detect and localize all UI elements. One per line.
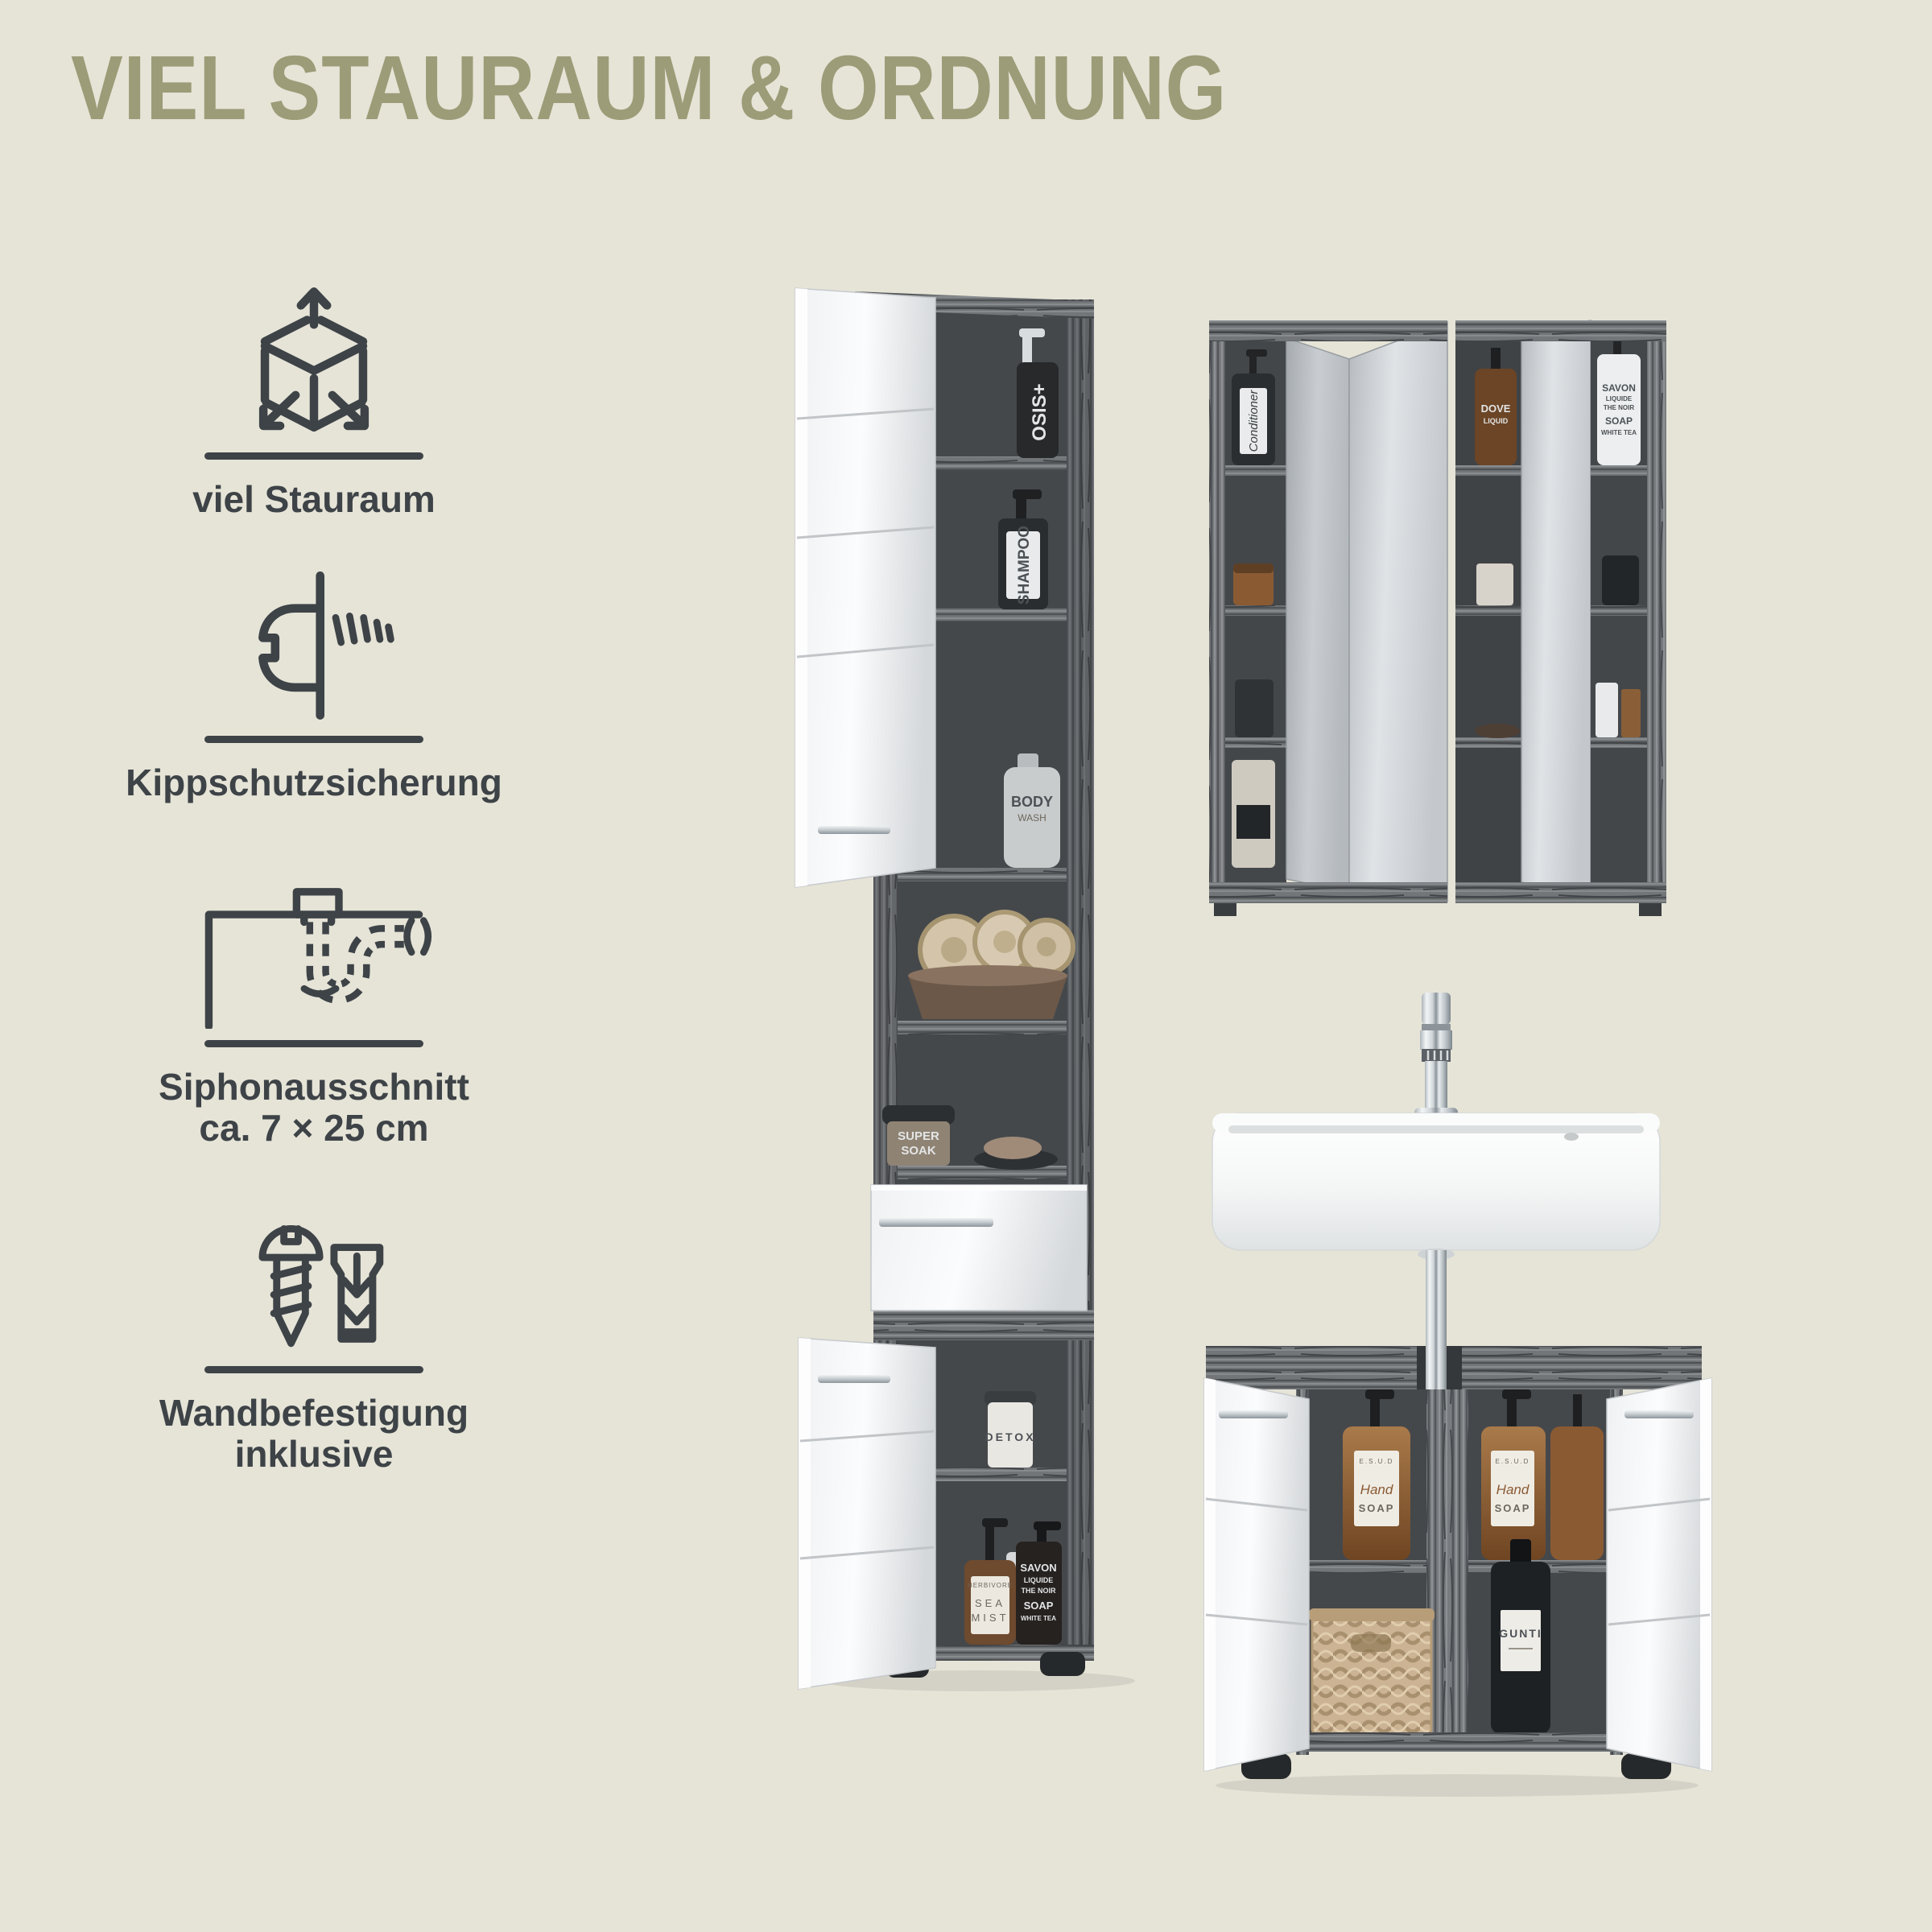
shelf bbox=[1455, 465, 1521, 476]
counter-top-left bbox=[1206, 1346, 1417, 1389]
jar-label-detox: DETOX bbox=[985, 1430, 1036, 1443]
washbasin bbox=[1212, 1113, 1660, 1250]
bottle-label-mist: MIST bbox=[971, 1612, 1009, 1624]
bottle-label-conditioner: Conditioner bbox=[1247, 390, 1261, 452]
mid-shelf-left bbox=[1309, 1560, 1426, 1573]
bottle-label-liquide: LIQUIDE bbox=[1606, 395, 1633, 402]
wicker-basket bbox=[1309, 1608, 1435, 1734]
shelf bbox=[1591, 605, 1647, 616]
bottle-label-whitetea: WHITE TEA bbox=[1601, 429, 1637, 436]
pump-nozzle bbox=[1034, 1521, 1061, 1530]
bottle-label-herbivore: HERBIVORE bbox=[968, 1582, 1013, 1589]
mirror-cabinet-left-unit: Conditioner bbox=[1209, 320, 1447, 916]
bottle-label-body: BODY bbox=[1011, 794, 1053, 810]
vanity-bottom-board bbox=[1296, 1732, 1623, 1752]
dropper-top bbox=[1491, 348, 1501, 370]
shelf bbox=[1225, 605, 1286, 616]
foot bbox=[1040, 1652, 1085, 1676]
shelf bbox=[1455, 605, 1521, 616]
bottle-label-noir: THE NOIR bbox=[1021, 1587, 1056, 1595]
gunti-bottle: GUNTI bbox=[1491, 1539, 1550, 1734]
bottle-label-osis: OSIS+ bbox=[1029, 383, 1051, 440]
bottle-label-gunti: GUNTI bbox=[1499, 1627, 1542, 1640]
pump-nozzle bbox=[982, 1518, 1008, 1527]
white-tube bbox=[1596, 683, 1618, 737]
towel-core bbox=[941, 937, 967, 963]
door-handle bbox=[818, 1375, 890, 1383]
bottle-label-sea: SEA bbox=[975, 1597, 1005, 1609]
towel-core bbox=[1037, 937, 1056, 956]
bottle-label bbox=[1501, 1610, 1541, 1671]
shelf bbox=[1455, 737, 1521, 748]
sink-vanity: E.S.U.D Hand SOAP E.S.U.D Hand SOAP bbox=[1204, 993, 1711, 1797]
pump-stem bbox=[1370, 1394, 1380, 1430]
detox-jar: DETOX bbox=[985, 1391, 1036, 1468]
shelf bbox=[898, 1166, 1067, 1179]
top-board bbox=[1455, 320, 1666, 341]
mirror-door-right-half bbox=[1349, 322, 1447, 902]
pump-nozzle bbox=[1502, 1389, 1531, 1399]
door-edge bbox=[1204, 1378, 1216, 1771]
faucet-column bbox=[1425, 1061, 1447, 1114]
bottle-label-soap: SOAP bbox=[1024, 1600, 1054, 1612]
bottle-label-dove: DOVE bbox=[1481, 402, 1511, 415]
bottle-label-esud: E.S.U.D bbox=[1496, 1458, 1530, 1465]
right-frame bbox=[1647, 340, 1666, 903]
tall-cabinet: OSIS+ SHAMPOO BODY WASH bbox=[795, 288, 1135, 1691]
drawer-front bbox=[871, 1185, 1087, 1311]
band-below-drawer bbox=[873, 1310, 1094, 1340]
door-panel bbox=[1204, 1378, 1309, 1771]
bottle-label-shampoo: SHAMPOO bbox=[1016, 526, 1033, 605]
small-dish bbox=[1475, 724, 1520, 738]
shelf bbox=[898, 1021, 1067, 1034]
bottle-label-whitetea: WHITE TEA bbox=[1021, 1615, 1056, 1622]
bottle-label-liquid: LIQUID bbox=[1484, 417, 1509, 425]
bottle-label-soap: SOAP bbox=[1495, 1502, 1531, 1514]
jar-label-soak: SOAK bbox=[901, 1144, 936, 1158]
jar-label bbox=[1236, 805, 1270, 839]
super-soak-jar: SUPER SOAK bbox=[882, 1105, 955, 1166]
faucet bbox=[1414, 993, 1458, 1117]
pump-stem bbox=[985, 1523, 994, 1562]
bottle-label-hand: Hand bbox=[1360, 1482, 1393, 1497]
bottle-label-esud: E.S.U.D bbox=[1360, 1458, 1394, 1465]
dark-jar bbox=[1235, 679, 1274, 737]
candle-lid bbox=[1233, 563, 1274, 573]
faucet-aerator bbox=[1422, 1049, 1451, 1062]
shelf bbox=[1225, 465, 1286, 476]
bottle-label-hand: Hand bbox=[1496, 1482, 1529, 1497]
jar-label-super: SUPER bbox=[898, 1129, 939, 1143]
bottom-board bbox=[1209, 882, 1447, 903]
bottle-label-soap: SOAP bbox=[1359, 1502, 1395, 1514]
wood-block bbox=[1621, 689, 1641, 737]
basket-body bbox=[1312, 1616, 1431, 1734]
basket-handle-hole bbox=[1351, 1634, 1391, 1652]
vanity-center-column bbox=[1426, 1389, 1468, 1736]
pump-stem-2 bbox=[1573, 1394, 1582, 1426]
door-edge bbox=[799, 1338, 811, 1689]
drawer-handle bbox=[879, 1218, 993, 1227]
tall-cabinet-bottom-door bbox=[799, 1338, 935, 1689]
basket-rim bbox=[1309, 1608, 1435, 1621]
mirror-door-left-half bbox=[1286, 338, 1349, 892]
black-bottle bbox=[1602, 555, 1639, 605]
mirror-cabinet-right-unit: DOVE LIQUID SAVON LIQUIDE bbox=[1455, 320, 1666, 916]
towel-bowl bbox=[908, 912, 1073, 1019]
mirror-cabinet: Conditioner bbox=[1209, 320, 1666, 916]
faucet-ring bbox=[1422, 1024, 1451, 1030]
bottle-label-noir: THE NOIR bbox=[1604, 404, 1634, 411]
pump-stem bbox=[1022, 333, 1032, 367]
door-handle bbox=[818, 826, 890, 834]
overflow-hole bbox=[1564, 1133, 1579, 1141]
bottle-label-liquide: LIQUIDE bbox=[1024, 1576, 1054, 1584]
pump-nozzle bbox=[1013, 489, 1042, 499]
pump-nozzle bbox=[1019, 328, 1045, 337]
bottle-body-2 bbox=[1550, 1426, 1604, 1560]
vanity-right-door bbox=[1607, 1378, 1711, 1771]
tall-cabinet-drawer bbox=[871, 1185, 1087, 1311]
door-handle bbox=[1624, 1410, 1694, 1418]
shelf bbox=[1591, 465, 1647, 476]
salt-jar bbox=[1232, 760, 1275, 868]
shelf bbox=[1225, 737, 1286, 748]
tall-cabinet-top-door bbox=[795, 288, 935, 887]
pump-stem bbox=[1249, 354, 1257, 375]
body-wash-bottle: BODY WASH bbox=[1004, 753, 1060, 868]
towel-core bbox=[993, 931, 1016, 953]
door-handle bbox=[1219, 1410, 1288, 1418]
bathroom-furniture-collage: OSIS+ SHAMPOO BODY WASH bbox=[0, 0, 1932, 1932]
faucet-top bbox=[1422, 993, 1451, 1025]
left-frame bbox=[1209, 340, 1225, 903]
top-board bbox=[1209, 320, 1447, 341]
pump-nozzle bbox=[1365, 1389, 1394, 1399]
door-panel bbox=[1607, 1378, 1711, 1771]
right-panel-shade bbox=[1067, 299, 1094, 1660]
door-panel bbox=[799, 1338, 935, 1689]
counter-top-right bbox=[1462, 1346, 1702, 1389]
pump-stem bbox=[1507, 1394, 1517, 1430]
basin-inner-edge bbox=[1228, 1125, 1644, 1133]
basin-body bbox=[1212, 1113, 1660, 1250]
drawer-top-edge bbox=[871, 1185, 1087, 1191]
bottom-board bbox=[1455, 882, 1666, 903]
soap-bar bbox=[984, 1137, 1042, 1159]
mirror-door-right bbox=[1521, 320, 1591, 895]
pump-nozzle bbox=[1246, 349, 1267, 357]
bowl-rim bbox=[908, 965, 1067, 986]
door-edge bbox=[795, 288, 807, 887]
vanity-left-door bbox=[1204, 1378, 1309, 1771]
faucet-block bbox=[1420, 1030, 1452, 1050]
bottle-label-wash: WASH bbox=[1018, 812, 1046, 824]
shelf bbox=[1591, 737, 1647, 748]
foot bbox=[1639, 903, 1662, 916]
bottle-label-savon: SAVON bbox=[1602, 382, 1636, 394]
door-panel bbox=[795, 288, 935, 887]
product-infographic: VIEL STAURAUM & ORDNUNG viel Stauraum Ki… bbox=[0, 0, 1932, 1932]
candle bbox=[1476, 563, 1513, 605]
foot bbox=[1214, 903, 1236, 916]
bottle-label-soap: SOAP bbox=[1605, 415, 1633, 427]
door-edge bbox=[1700, 1378, 1711, 1771]
bottle-label-savon: SAVON bbox=[1020, 1562, 1056, 1574]
